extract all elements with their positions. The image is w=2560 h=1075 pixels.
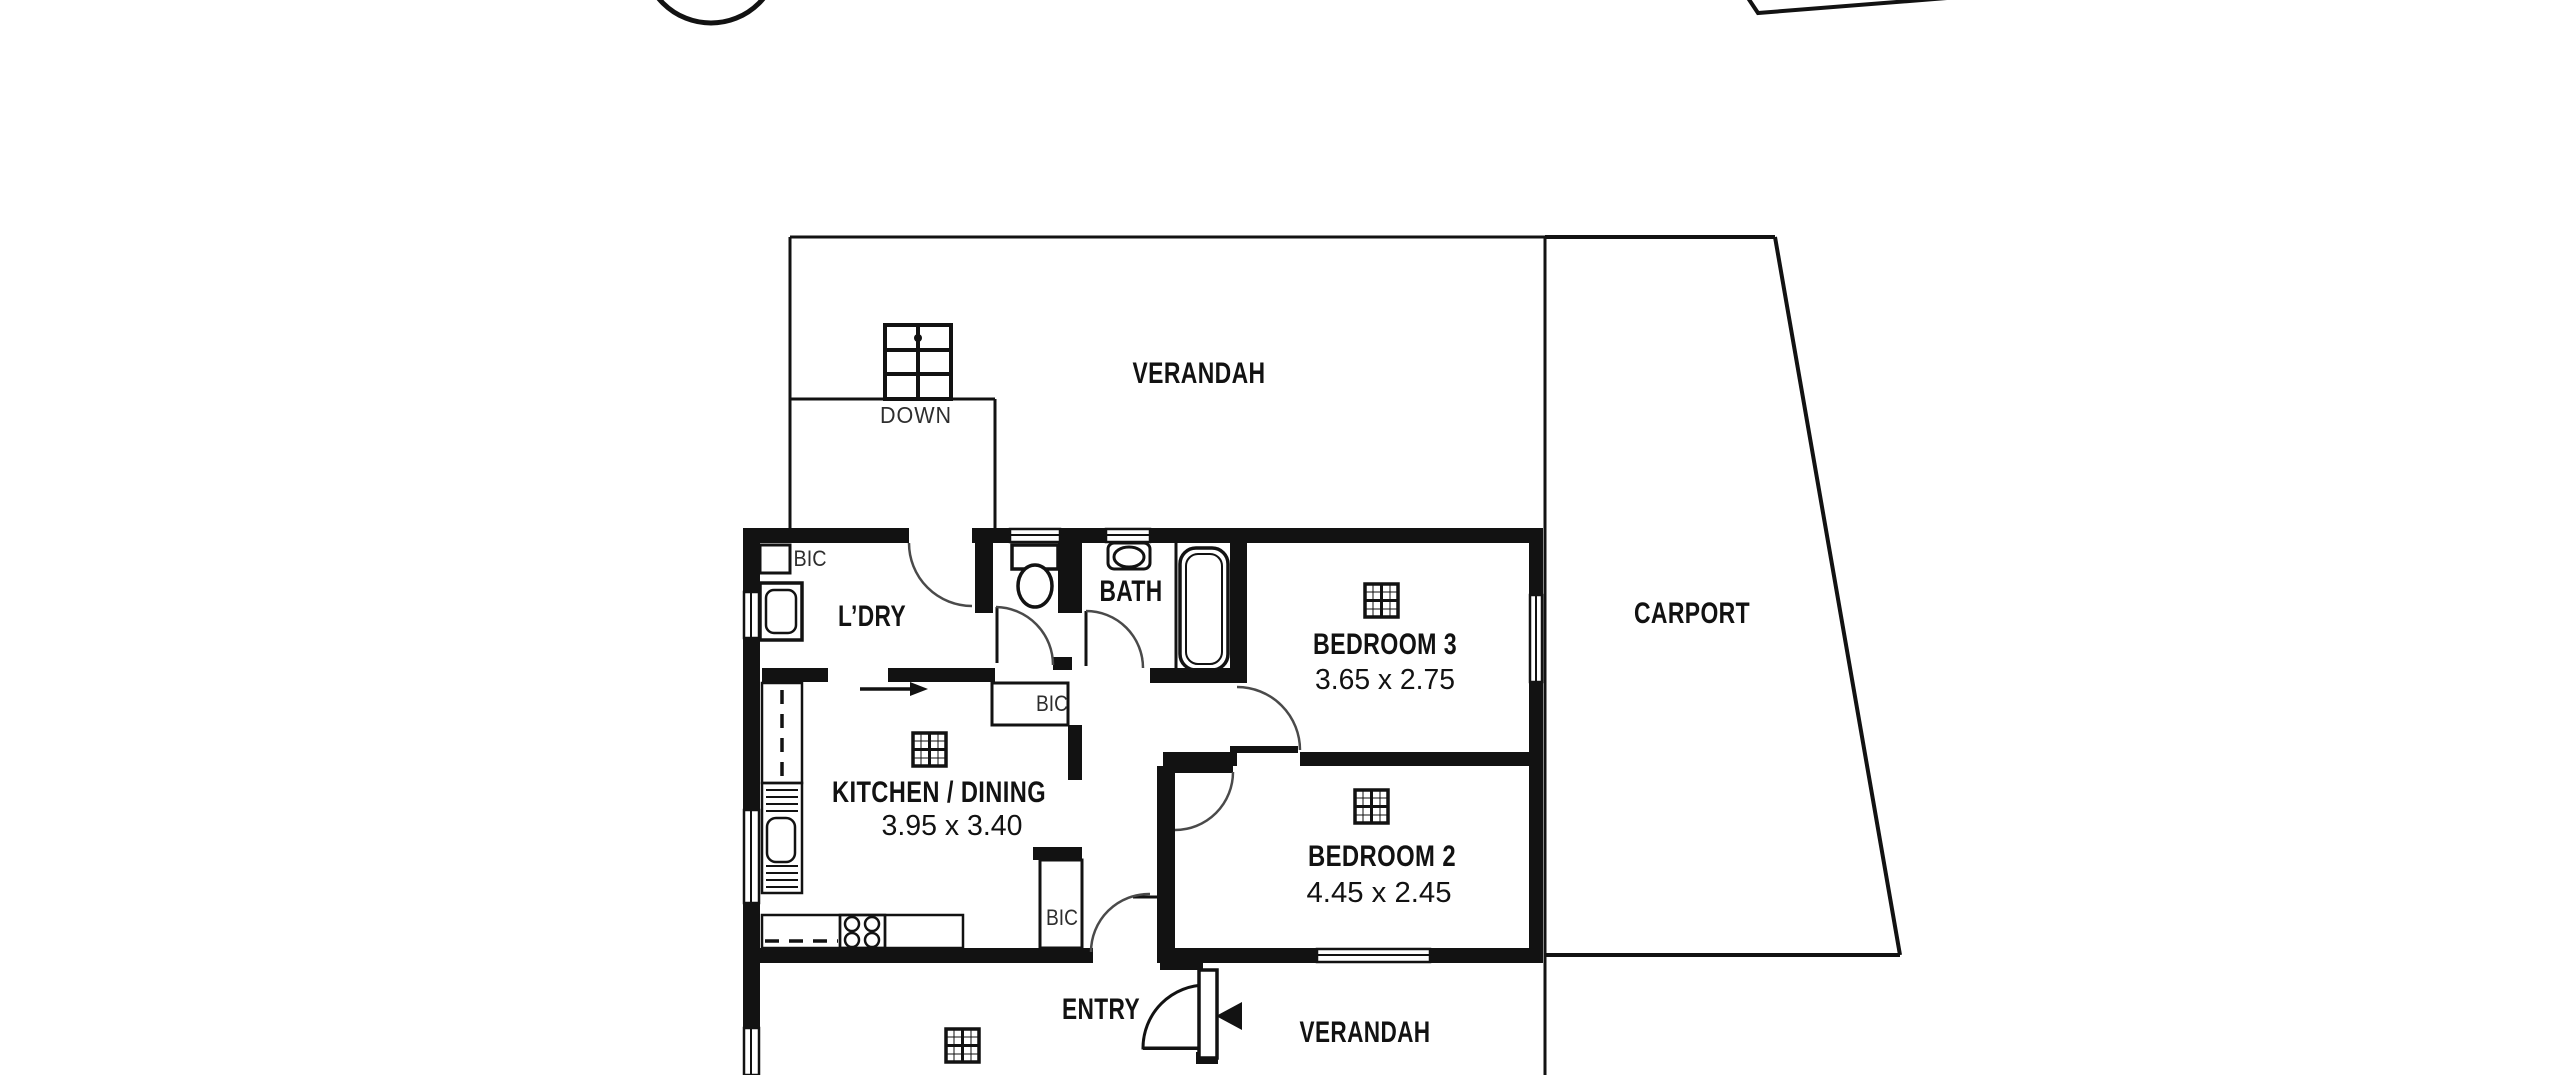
bedroom2-label: BEDROOM 2 <box>1308 840 1456 873</box>
entry-label: ENTRY <box>1062 993 1140 1026</box>
toilet-icon <box>1012 545 1058 607</box>
kitchen-label: KITCHEN / DINING <box>832 776 1046 809</box>
carport-outline <box>1545 237 1900 955</box>
entry-direction-arrow <box>1216 1002 1242 1030</box>
bath-label: BATH <box>1100 575 1163 608</box>
robe-bic-label: BIC <box>1046 905 1078 930</box>
floor-plan-canvas: VERANDAH DOWN BIC L’DRY BATH BEDROOM 3 3… <box>0 0 2560 1075</box>
front-door <box>1143 970 1217 1058</box>
laundry-tub-icon <box>760 583 802 640</box>
bedroom2-dims: 4.45 x 2.45 <box>1307 877 1452 909</box>
compass-circle <box>643 0 779 23</box>
boundary-line <box>1744 0 2010 13</box>
bedroom3-label: BEDROOM 3 <box>1313 628 1457 661</box>
floor-plan-page: VERANDAH DOWN BIC L’DRY BATH BEDROOM 3 3… <box>0 0 2560 1075</box>
bathtub-icon <box>1176 543 1228 670</box>
laundry-label: L’DRY <box>838 600 906 633</box>
basin-icon <box>1108 543 1150 569</box>
laundry-bic-label: BIC <box>794 546 827 571</box>
carport-label: CARPORT <box>1634 597 1750 630</box>
verandah-top-label: VERANDAH <box>1133 357 1266 390</box>
verandah-bottom-label: VERANDAH <box>1300 1016 1431 1049</box>
kitchen-dims: 3.95 x 3.40 <box>882 810 1023 842</box>
flow-arrow <box>860 682 928 696</box>
kitchen-sink-icon <box>762 783 802 893</box>
bedroom3-dims: 3.65 x 2.75 <box>1315 664 1455 696</box>
stairs-icon <box>885 325 951 399</box>
stove-icon <box>840 915 885 948</box>
linen-bic-label: BIC <box>1036 691 1068 716</box>
down-label: DOWN <box>880 402 952 428</box>
